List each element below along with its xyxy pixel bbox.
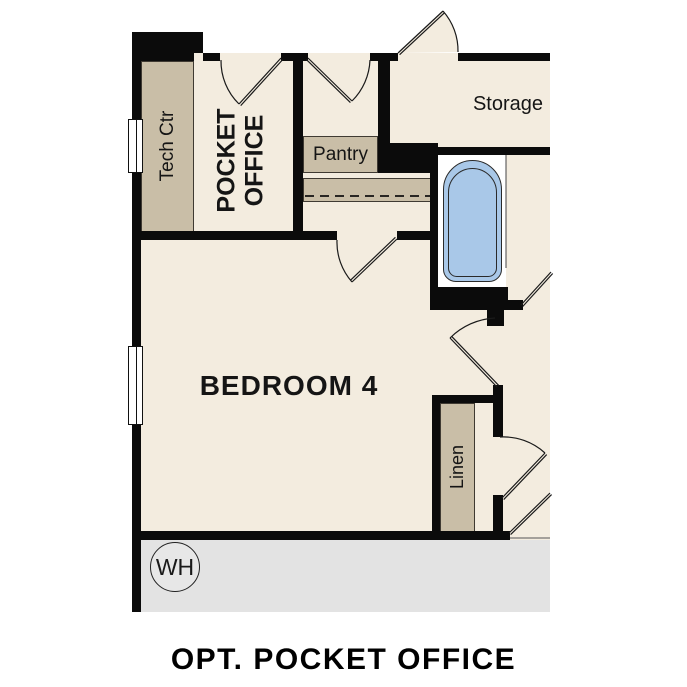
floor-plan: Tech Ctr POCKET OFFICE Pantry Storage BE… (0, 0, 687, 687)
door-swing (450, 318, 499, 387)
room-label-tech-ctr: Tech Ctr (156, 66, 180, 226)
plan-caption: OPT. POCKET OFFICE (0, 643, 687, 677)
door-leaf (521, 272, 553, 307)
door-swing (500, 437, 547, 500)
pocket-office-line2: OFFICE (241, 115, 269, 207)
room-label-bedroom-4: BEDROOM 4 (164, 370, 414, 402)
door-leaf (509, 493, 552, 535)
pocket-office-line1: POCKET (214, 108, 242, 212)
door-swing (337, 237, 397, 282)
room-label-pocket-office: POCKET OFFICE (212, 96, 271, 226)
door-swing (306, 58, 370, 103)
room-label-storage: Storage (458, 92, 558, 116)
water-heater-symbol: WH (150, 542, 200, 592)
room-label-pantry: Pantry (303, 136, 378, 173)
door-and-line-overlay (0, 0, 687, 687)
door-swing-wedge (398, 11, 458, 53)
water-heater-label: WH (156, 554, 194, 581)
room-label-linen: Linen (447, 402, 467, 532)
